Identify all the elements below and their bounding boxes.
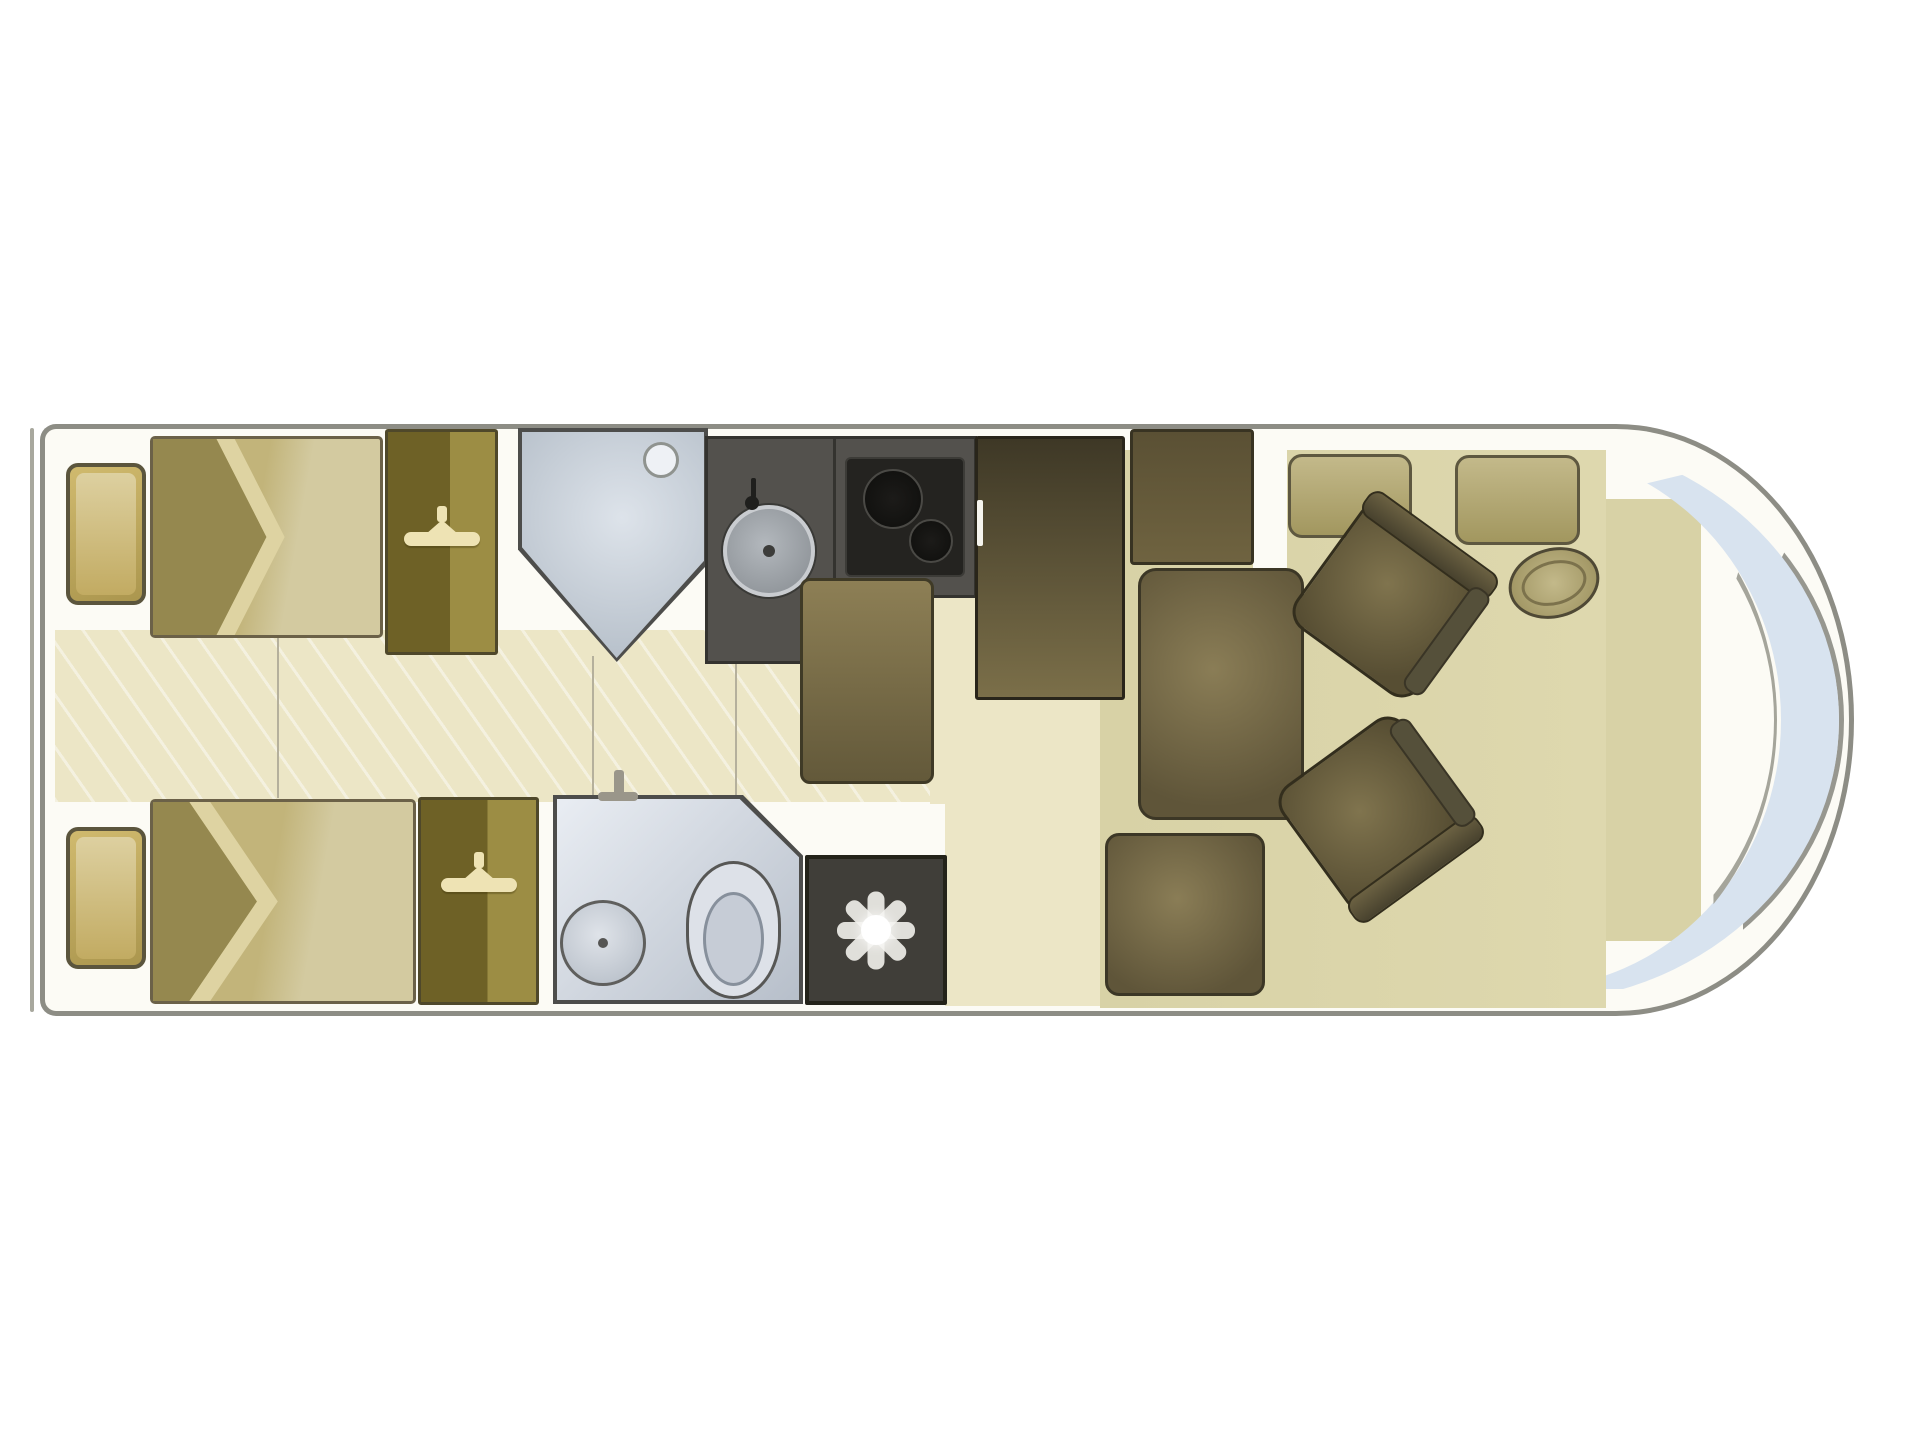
sink-faucet-icon bbox=[751, 478, 756, 498]
washbasin bbox=[560, 900, 646, 986]
single-bed-bottom bbox=[150, 799, 416, 1004]
sideboard bbox=[1130, 429, 1254, 565]
front-locker-right bbox=[1455, 455, 1580, 545]
toilet bbox=[686, 861, 781, 999]
bed-fold-dark bbox=[153, 802, 413, 1001]
heater-vent-panel bbox=[805, 855, 947, 1005]
nightstand-top bbox=[66, 463, 146, 605]
hanger-icon bbox=[441, 852, 517, 898]
hob-burner bbox=[863, 469, 923, 529]
fridge-cabinet bbox=[975, 436, 1125, 700]
lounge-seat bbox=[1138, 568, 1304, 820]
floor-plan-canvas bbox=[0, 0, 1920, 1440]
door-line bbox=[277, 638, 279, 798]
door-line bbox=[735, 660, 737, 796]
nightstand-bottom bbox=[66, 827, 146, 969]
single-bed-top bbox=[150, 436, 383, 638]
tap-icon bbox=[598, 792, 638, 801]
fridge-handle bbox=[977, 500, 983, 546]
hob bbox=[845, 457, 965, 577]
entry-floor bbox=[945, 794, 1103, 1006]
floor-gap-strip bbox=[1253, 430, 1287, 570]
hanger-icon bbox=[404, 506, 480, 552]
side-seat bbox=[1105, 833, 1265, 996]
wardrobe-bottom bbox=[418, 797, 539, 1005]
vehicle-nose bbox=[1606, 424, 1854, 1016]
door-line bbox=[592, 656, 594, 796]
sink-faucet-icon bbox=[745, 496, 759, 510]
rear-bumper-line bbox=[30, 428, 34, 1012]
kitchen-lower-unit bbox=[800, 578, 934, 784]
vent-star-center bbox=[861, 915, 891, 945]
hob-burner bbox=[909, 519, 953, 563]
wardrobe-top bbox=[385, 429, 498, 655]
